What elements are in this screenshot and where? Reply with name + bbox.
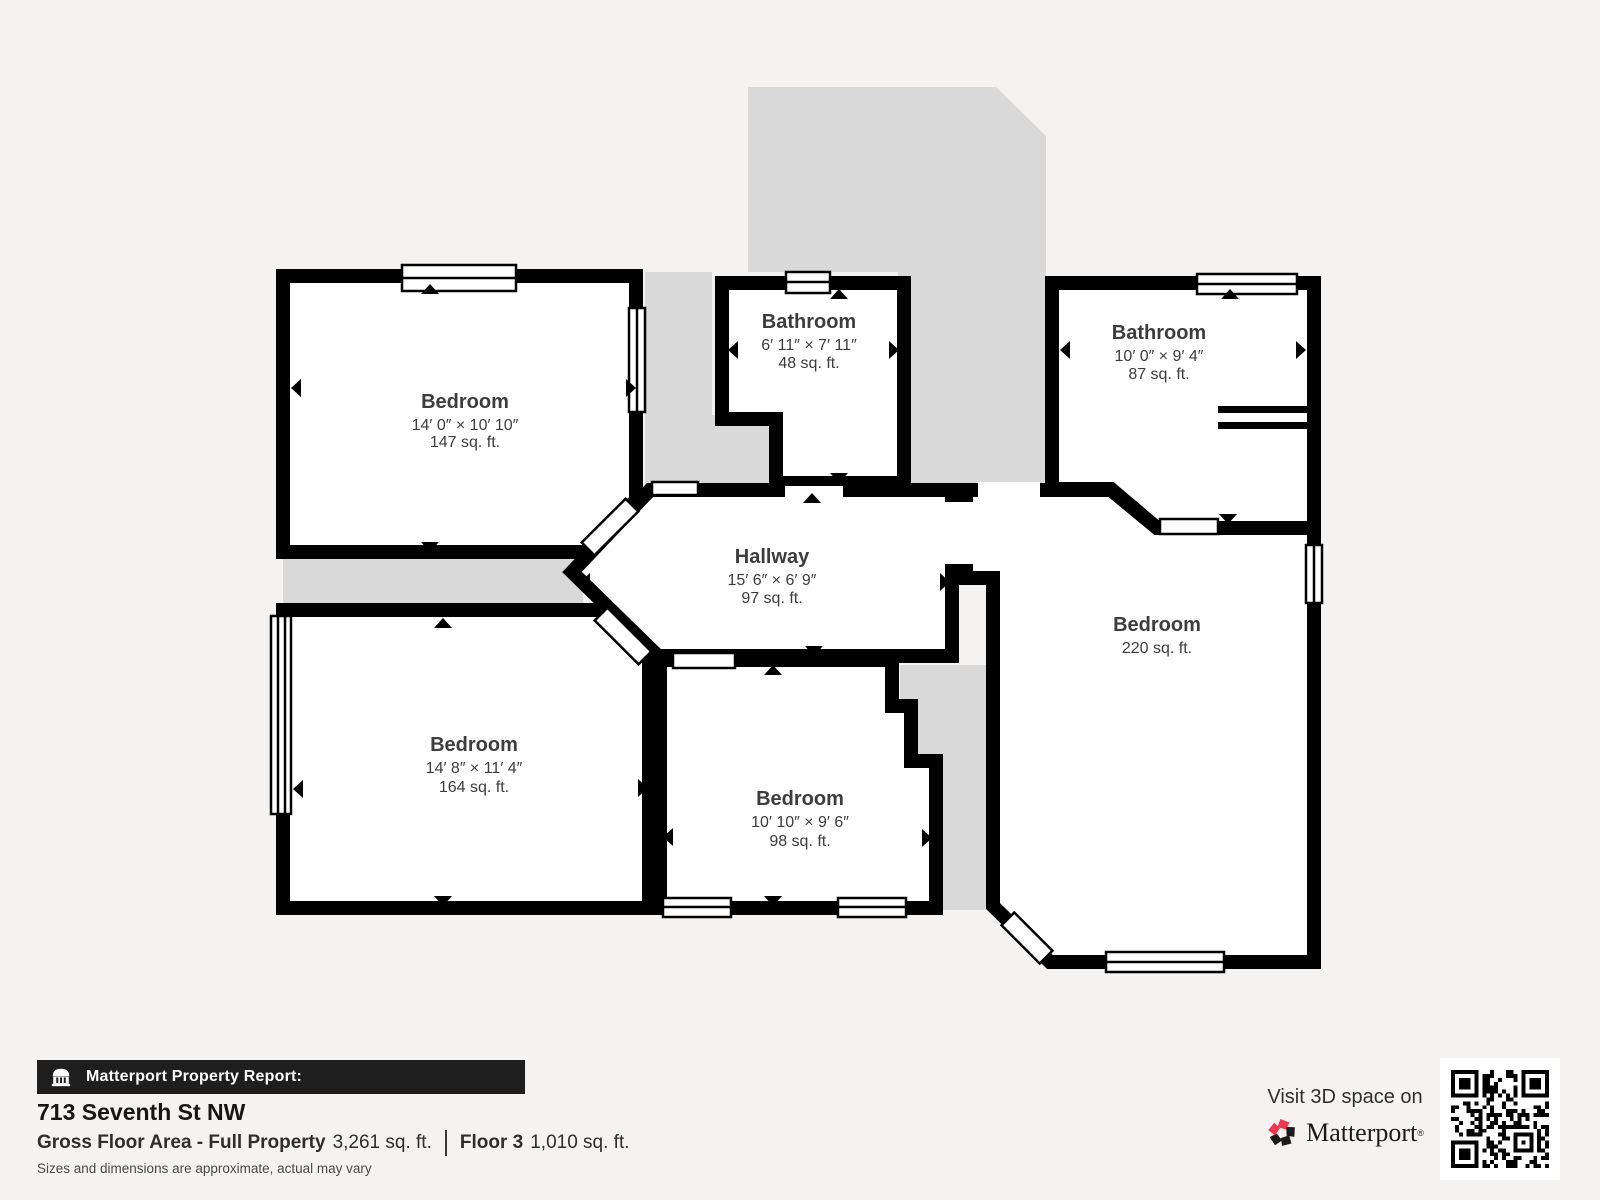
window: [271, 616, 291, 814]
room-label-name: Bedroom: [1113, 614, 1201, 636]
room-label-area: 220 sq. ft.: [1122, 640, 1192, 657]
room-label-name: Bathroom: [1112, 322, 1206, 344]
room-label-dims: 10′ 0″ × 9′ 4″: [1115, 348, 1204, 365]
room-bedroom-right: [966, 490, 1314, 962]
room-bedroom-bottom-left: [283, 610, 649, 908]
room-label-area: 97 sq. ft.: [741, 590, 802, 607]
room-label-area: 98 sq. ft.: [769, 833, 830, 850]
room-label-area: 87 sq. ft.: [1128, 366, 1189, 383]
room-label-area: 147 sq. ft.: [430, 434, 500, 451]
unexplored-left-strip: [283, 558, 583, 604]
room-label-dims: 15′ 6″ × 6′ 9″: [728, 572, 817, 589]
room-label-name: Bedroom: [756, 788, 844, 810]
floor-plan: Bedroom 14′ 0″ × 10′ 10″ 147 sq. ft. Bat…: [0, 0, 1600, 1200]
divider: [445, 1130, 447, 1156]
room-label-name: Bathroom: [762, 311, 856, 333]
report-title: Matterport Property Report:: [86, 1068, 302, 1086]
visit-3d-cta: Visit 3D space on Matterport®: [1240, 1086, 1450, 1149]
report-header-bar: Matterport Property Report:: [37, 1060, 525, 1094]
building-icon: [50, 1066, 72, 1088]
window: [673, 653, 735, 668]
room-label-name: Hallway: [735, 546, 810, 568]
qr-code[interactable]: [1440, 1058, 1560, 1180]
gfa-label: Gross Floor Area - Full Property: [37, 1132, 326, 1154]
room-bedroom-bottom-middle: [660, 660, 936, 908]
trademark-mark: ®: [1417, 1128, 1424, 1138]
property-address: 713 Seventh St NW: [37, 1099, 245, 1126]
room-label-dims: 14′ 0″ × 10′ 10″: [412, 417, 519, 434]
room-label-dims: 10′ 10″ × 9′ 6″: [751, 814, 849, 831]
floor-value: 1,010 sq. ft.: [530, 1132, 629, 1154]
gfa-value: 3,261 sq. ft.: [333, 1132, 432, 1154]
room-bedroom-top-left: [283, 276, 636, 552]
matterport-wordmark: Matterport: [1306, 1118, 1417, 1148]
window: [652, 482, 698, 495]
floor-area-summary: Gross Floor Area - Full Property 3,261 s…: [37, 1130, 630, 1156]
disclaimer-text: Sizes and dimensions are approximate, ac…: [37, 1161, 372, 1176]
door-bedroom-right-top: [978, 482, 1040, 498]
window: [1160, 519, 1218, 534]
room-label-area: 164 sq. ft.: [439, 779, 509, 796]
room-label-dims: 14′ 8″ × 11′ 4″: [426, 760, 523, 777]
room-label-name: Bedroom: [421, 391, 509, 413]
floor-label: Floor 3: [460, 1132, 523, 1154]
visit-3d-text: Visit 3D space on: [1240, 1086, 1450, 1109]
matterport-pinwheel-icon: [1266, 1117, 1298, 1149]
room-label-name: Bedroom: [430, 734, 518, 756]
room-label-dims: 6′ 11″ × 7′ 11″: [761, 337, 857, 354]
door-hallway-right: [944, 502, 974, 564]
matterport-logo[interactable]: Matterport®: [1240, 1117, 1450, 1149]
room-label-area: 48 sq. ft.: [778, 355, 839, 372]
